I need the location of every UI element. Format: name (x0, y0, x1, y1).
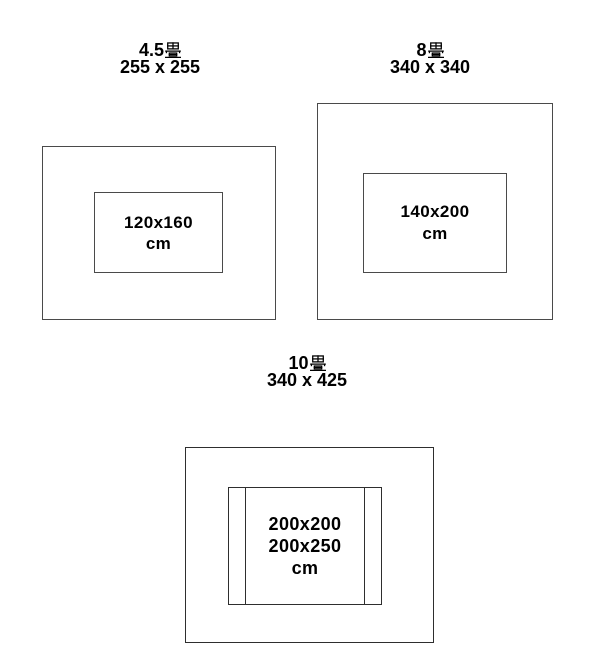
rug-size-text: 120x160 (124, 212, 193, 233)
room-dimensions-text: 340 x 340 (330, 59, 530, 76)
rug-outline-140x200: 140x200 cm (363, 173, 507, 273)
rug-size-text: 200x250 (269, 535, 342, 557)
rug-unit-text: cm (146, 233, 171, 254)
rug-fold-line-right (364, 488, 365, 604)
tatami-rug-size-diagram: 4.5 255 x 255 120x160 cm (0, 0, 600, 650)
room-label-4-5-tatami: 4.5 255 x 255 (60, 42, 260, 76)
tatami-unit-glyph (165, 42, 181, 58)
tatami-unit-glyph (310, 355, 326, 371)
rug-size-text: 200x200 (269, 513, 342, 535)
rug-outline-200x200-200x250: 200x200 200x250 cm (228, 487, 382, 605)
room-dimensions-text: 255 x 255 (60, 59, 260, 76)
room-label-8-tatami: 8 340 x 340 (330, 42, 530, 76)
rug-size-text: 140x200 (401, 201, 470, 223)
rug-unit-text: cm (292, 557, 319, 579)
rug-outline-120x160: 120x160 cm (94, 192, 223, 273)
room-dimensions-text: 340 x 425 (207, 372, 407, 389)
room-label-10-tatami: 10 340 x 425 (207, 355, 407, 389)
rug-unit-text: cm (422, 223, 447, 245)
rug-fold-line-left (245, 488, 246, 604)
tatami-unit-glyph (428, 42, 444, 58)
